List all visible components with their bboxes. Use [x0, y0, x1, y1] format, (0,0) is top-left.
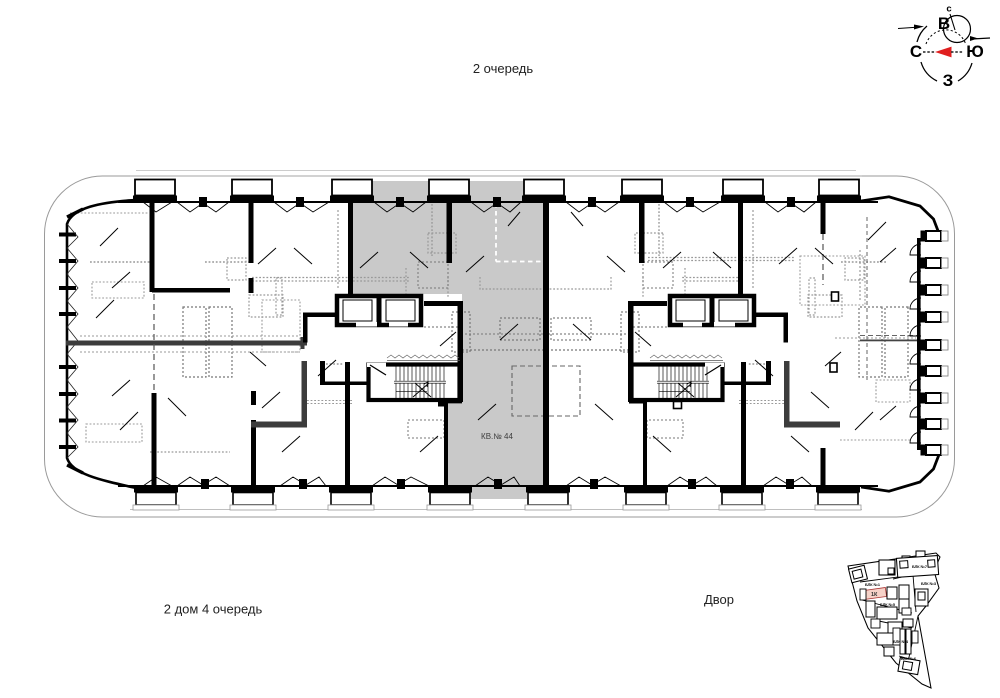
- svg-text:БЛК №4: БЛК №4: [893, 640, 909, 644]
- svg-text:БЛК №6: БЛК №6: [901, 657, 916, 661]
- svg-text:с: с: [946, 4, 951, 15]
- svg-text:С: С: [910, 42, 922, 61]
- svg-text:БЛК №5: БЛК №5: [880, 603, 895, 607]
- svg-text:БЛК №7: БЛК №7: [912, 565, 927, 569]
- svg-text:В: В: [938, 14, 950, 33]
- svg-text:БЛК №1: БЛК №1: [865, 583, 880, 587]
- svg-text:КВ.№ 44: КВ.№ 44: [481, 432, 513, 441]
- svg-text:З: З: [943, 71, 954, 90]
- svg-text:1К: 1К: [871, 592, 878, 598]
- svg-text:БЛК №3: БЛК №3: [921, 582, 936, 586]
- svg-text:2 дом 4 очередь: 2 дом 4 очередь: [164, 602, 263, 617]
- svg-text:Двор: Двор: [704, 592, 734, 607]
- svg-text:2 очередь: 2 очередь: [473, 61, 534, 76]
- svg-text:Ю: Ю: [966, 42, 984, 61]
